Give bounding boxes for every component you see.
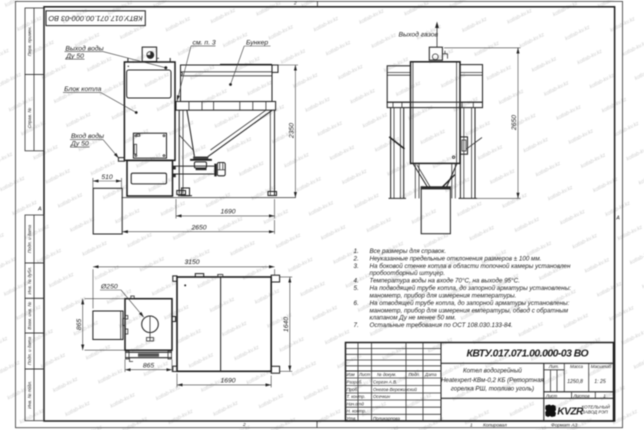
svg-text:5.: 5. — [354, 285, 359, 292]
svg-text:Ду 50: Ду 50 — [65, 53, 84, 60]
svg-text:На подводящей трубе котла, до: На подводящей трубе котла, до запорной а… — [370, 285, 572, 292]
svg-text:1: 25: 1: 25 — [594, 379, 606, 385]
svg-text:Справ. №: Справ. № — [27, 108, 32, 129]
svg-text:горелка РШ, топливо уголь): горелка РШ, топливо уголь) — [451, 386, 534, 393]
svg-text:Остальные требования по ОСТ 10: Остальные требования по ОСТ 108.030.133-… — [370, 322, 513, 329]
svg-text:Бункер: Бункер — [246, 40, 268, 47]
svg-text:Подп.: Подп. — [409, 372, 421, 377]
svg-text:Температура воды на входе 70°С: Температура воды на входе 70°С, на выход… — [370, 278, 520, 285]
svg-text:Копировал: Копировал — [483, 422, 507, 428]
svg-text:Формат А3: Формат А3 — [551, 422, 578, 428]
svg-text:3.: 3. — [354, 263, 359, 270]
svg-text:1.: 1. — [354, 248, 359, 255]
svg-text:2: 2 — [242, 422, 246, 428]
svg-text:1690: 1690 — [220, 378, 235, 385]
svg-text:Лист: Лист — [545, 393, 558, 398]
svg-text:7.: 7. — [354, 322, 359, 329]
svg-text:Блок котла: Блок котла — [64, 86, 101, 93]
svg-text:№ докум.: № докум. — [377, 372, 396, 377]
svg-text:Осечкин: Осечкин — [373, 394, 391, 399]
svg-text:Т. контр.: Т. контр. — [347, 394, 366, 399]
svg-text:2: 2 — [293, 1, 297, 6]
svg-text:Разраб.: Разраб. — [347, 380, 363, 385]
svg-text:Выход воды: Выход воды — [65, 44, 103, 52]
svg-text:Вход воды: Вход воды — [71, 132, 104, 140]
svg-text:Онегов-Вережинский: Онегов-Вережинский — [373, 387, 417, 392]
svg-text:Инв. № подл.: Инв. № подл. — [27, 381, 32, 409]
svg-text:Ø250: Ø250 — [100, 284, 118, 291]
svg-text:Выход газов: Выход газов — [399, 30, 439, 38]
svg-text:Инв. № дубл.: Инв. № дубл. — [27, 267, 32, 295]
svg-text:Сергач А.В.: Сергач А.В. — [373, 380, 397, 385]
svg-text:Дата: Дата — [424, 372, 437, 377]
svg-text:Взам. инв. №: Взам. инв. № — [27, 302, 32, 330]
svg-text:А: А — [37, 207, 42, 213]
svg-text:Проб.: Проб. — [347, 387, 359, 392]
svg-text:На отводящей трубе котла, до з: На отводящей трубе котла, до запорной ар… — [370, 300, 570, 307]
svg-text:2650: 2650 — [511, 115, 518, 131]
svg-text:Подп. и дата: Подп. и дата — [27, 336, 32, 365]
svg-text:2650: 2650 — [190, 224, 206, 231]
svg-text:865: 865 — [76, 319, 83, 331]
svg-text:см. п. 3: см. п. 3 — [193, 40, 216, 47]
svg-text:клапаном Ду не менее 50 мм.: клапаном Ду не менее 50 мм. — [370, 315, 457, 322]
svg-text:865: 865 — [143, 362, 155, 369]
svg-text:3150: 3150 — [184, 259, 199, 266]
svg-text:А: А — [615, 216, 620, 222]
svg-text:КОТЕЛЬНЫЙ: КОТЕЛЬНЫЙ — [582, 403, 611, 410]
svg-text:510: 510 — [101, 174, 113, 181]
svg-text:Утв.: Утв. — [347, 416, 357, 421]
svg-text:2350: 2350 — [289, 123, 296, 139]
svg-text:Н. контр.: Н. контр. — [347, 409, 367, 414]
svg-text:4.: 4. — [354, 278, 359, 285]
svg-text:KVZR: KVZR — [557, 406, 584, 417]
svg-text:Котел водогрейный: Котел водогрейный — [463, 368, 522, 375]
svg-text:2.: 2. — [353, 255, 359, 262]
svg-text:Перв. примен.: Перв. примен. — [27, 26, 32, 56]
svg-text:манометр, прибор для измерения: манометр, прибор для измерения емператур… — [370, 307, 569, 314]
svg-text:Нач.отд: Нач.отд — [347, 402, 365, 407]
svg-text:Подп. и дата: Подп. и дата — [27, 224, 32, 253]
svg-text:КВТУ.017.071.00.000-03 ВО: КВТУ.017.071.00.000-03 ВО — [466, 348, 588, 359]
svg-text:Ду 50: Ду 50 — [70, 141, 89, 148]
svg-text:Лит.: Лит. — [548, 364, 559, 369]
svg-text:ЗАВОД РЭП: ЗАВОД РЭП — [582, 410, 609, 415]
svg-text:Листов: Листов — [573, 393, 591, 398]
svg-text:1250,8: 1250,8 — [567, 379, 583, 385]
svg-text:Масса: Масса — [570, 364, 584, 369]
svg-text:Все размеры для справок.: Все размеры для справок. — [370, 248, 447, 255]
svg-text:Масштаб: Масштаб — [591, 364, 612, 369]
svg-text:1690: 1690 — [220, 208, 235, 215]
svg-text:Heatexpert-КВм-0,2 КБ (Ретортн: Heatexpert-КВм-0,2 КБ (Ретортная — [441, 377, 545, 384]
svg-text:пробоотборный штуцер.: пробоотборный штуцер. — [370, 270, 445, 277]
svg-text:Неуказанные предельные отклоне: Неуказанные предельные отклонения размер… — [370, 255, 542, 262]
svg-text:КВТУ.017.071.00.000-03 ВО: КВТУ.017.071.00.000-03 ВО — [48, 14, 142, 23]
svg-text:6.: 6. — [354, 300, 359, 307]
svg-text:1640: 1640 — [283, 317, 290, 332]
svg-text:На боковой стенке котла в обла: На боковой стенке котла в области топочн… — [370, 263, 571, 270]
svg-text:1: 1 — [470, 422, 473, 428]
svg-text:Изм: Изм — [347, 372, 355, 377]
svg-text:манометр, прибор для измерения: манометр, прибор для измерения температу… — [370, 293, 517, 300]
svg-text:Лист: Лист — [358, 372, 371, 377]
svg-text:Поликарпова: Поликарпова — [373, 416, 400, 421]
